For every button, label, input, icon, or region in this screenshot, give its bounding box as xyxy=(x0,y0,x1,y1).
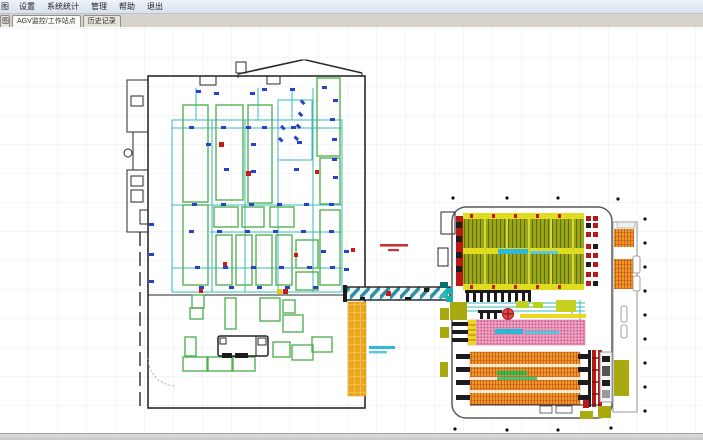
agv-corridor xyxy=(343,285,450,302)
menu-item-view[interactable]: 图 xyxy=(0,1,13,12)
right-warehouse xyxy=(438,196,647,431)
yellow-buffer-strip xyxy=(348,302,366,396)
tab-agv-monitor[interactable]: AGV监控/工作站点 xyxy=(12,15,81,27)
olive-rack-block xyxy=(456,213,598,290)
truck-shape xyxy=(218,336,268,358)
menu-item-exit[interactable]: 退出 xyxy=(141,1,169,12)
tab-bar: 图 AGV监控/工作站点 历史记录 xyxy=(0,14,703,27)
menu-item-help[interactable]: 帮助 xyxy=(113,1,141,12)
menu-item-manage[interactable]: 管理 xyxy=(85,1,113,12)
tab-history[interactable]: 历史记录 xyxy=(83,15,121,27)
menu-item-statistics[interactable]: 系统统计 xyxy=(41,1,85,12)
menu-bar: 图 设置 系统统计 管理 帮助 退出 xyxy=(0,0,703,14)
menu-item-settings[interactable]: 设置 xyxy=(13,1,41,12)
floorplan-canvas[interactable] xyxy=(0,27,703,440)
orange-rack-block xyxy=(456,350,602,407)
right-side-panel xyxy=(613,222,640,412)
horizontal-scrollbar[interactable] xyxy=(0,433,703,440)
agv-monitor-window: 图 设置 系统统计 管理 帮助 退出 图 AGV监控/工作站点 历史记录 xyxy=(0,0,703,440)
tab-clipped[interactable]: 图 xyxy=(0,15,10,27)
